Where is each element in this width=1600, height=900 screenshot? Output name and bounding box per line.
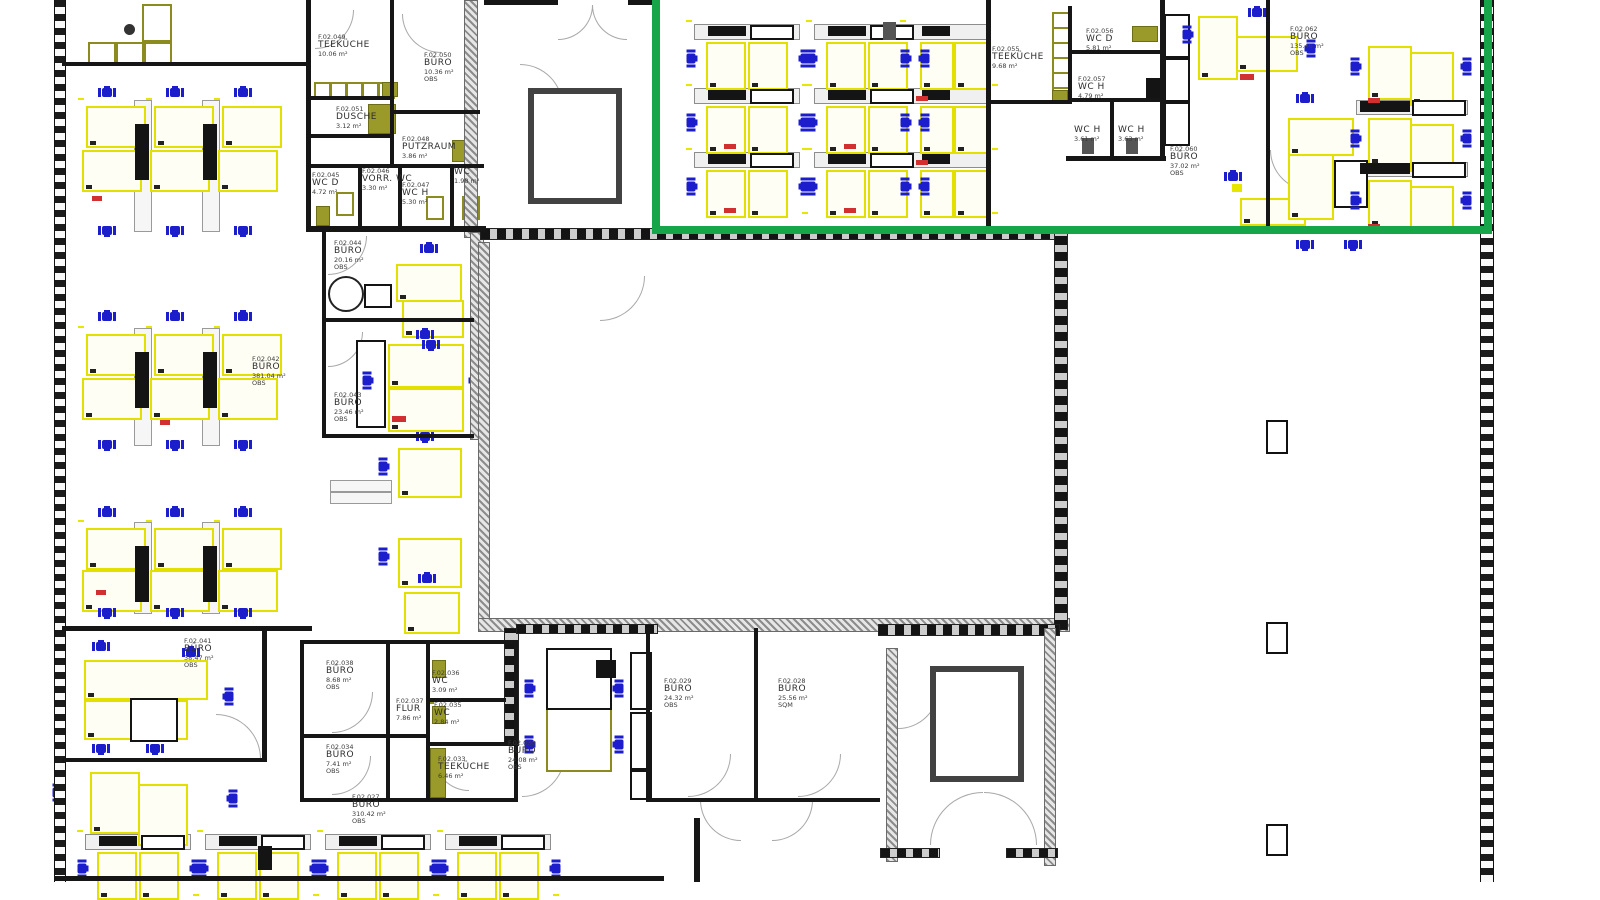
corner-tick [433,894,439,896]
wall [62,758,267,762]
chair-icon [379,462,388,472]
chair-icon [363,376,372,386]
desk [1368,46,1412,100]
floor-marker [724,208,736,213]
wall [484,0,558,5]
chair-icon [238,226,248,235]
structural-column [1266,622,1288,654]
hall-south-wall-a [880,848,940,858]
cabinet [130,698,178,742]
chair-icon [170,88,180,97]
corner-tick [992,148,998,150]
structural-column [1266,420,1288,454]
cabinet [1360,163,1410,174]
room-area: 9.68 m² [992,63,1044,70]
room-label-flur: F.02.037FLUR7.86 m² [396,698,424,722]
wall [54,876,664,881]
selection-highlight-left [652,0,660,234]
room-tag: OBS [184,662,214,669]
room-label-wc_d_nw: F.02.045WC D4.72 m² [312,172,340,196]
hall-south-wall-b [1006,848,1058,858]
room-label-buero_2432: F.02.029BÜRO24.32 m²OBS [664,678,694,709]
room-tag: OBS [1290,50,1324,57]
wall [1266,0,1270,226]
wall [426,644,430,802]
chair-icon [1351,134,1360,144]
floor-marker [1232,184,1242,192]
chair-icon [102,226,112,235]
cabinet [750,25,794,40]
door-arc [592,5,627,40]
door-arc [402,14,441,53]
room-area: 4.72 m² [312,189,340,196]
chair-icon [96,642,106,651]
chair-icon [102,312,112,321]
door-arc [772,800,813,841]
room-tag: OBS [326,684,354,691]
room-area: 3.09 m² [432,687,460,694]
corner-tick [193,894,199,896]
cabinet [1412,162,1466,178]
desk [82,150,142,192]
wc-fixture [1132,26,1158,42]
desk [150,378,210,420]
door-arc [984,792,1037,845]
chair-icon [901,118,910,128]
chair-icon [238,440,248,449]
corner-tick [78,520,84,522]
desk [150,150,210,192]
door-arc [600,276,645,321]
chair-icon [422,574,432,583]
hall-north-wall [878,624,1060,636]
wall [322,318,474,322]
chair-icon [238,508,248,517]
chair-icon [552,864,561,874]
chair-icon [1252,8,1262,17]
courtyard-east-wall [1054,232,1068,630]
chair-icon [170,312,180,321]
desk [218,570,278,612]
cabinet [708,154,746,164]
room-area: 3.86 m² [402,153,456,160]
room-label-buero_2016: F.02.044BÜRO20.16 m²OBS [334,240,364,271]
chair-icon [170,508,180,517]
desk [1288,118,1354,156]
wall [1068,6,1072,104]
room-label-teekueche_s: F.02.033TEEKÜCHE6.46 m² [438,756,490,780]
room-tag: OBS [334,264,364,271]
floor-marker [844,144,856,149]
chair-icon [238,88,248,97]
floor-marker [1240,74,1254,80]
wall [386,644,390,802]
wall [322,434,474,438]
room-area: 3.63 m² [1118,136,1145,143]
corner-tick [313,894,319,896]
chair-icon [901,182,910,192]
wall [1066,156,1166,161]
desk [150,570,210,612]
chair-icon [238,608,248,617]
wall [62,626,312,631]
desk [706,42,746,90]
selection-highlight-right [1484,0,1492,234]
desk [90,772,140,834]
chair-icon [1228,172,1238,181]
chair-icon [807,182,816,192]
room-area: 6.46 m² [438,773,490,780]
wall [646,628,650,802]
wall [1110,98,1114,160]
chair-icon [198,864,207,874]
corner-tick [806,148,812,150]
side-table [364,284,392,308]
cabinet [708,26,746,36]
floor-marker [160,420,170,425]
cabinet [203,124,217,180]
cabinet [596,660,616,678]
room-label-putzraum: F.02.048PUTZRAUM3.86 m² [402,136,456,160]
chair-icon [1351,62,1360,72]
wall [694,818,700,882]
desk [748,170,788,218]
left-facade-wall [54,0,66,882]
room-area: 3.12 m² [336,123,377,130]
room-area: 5.81 m² [1086,45,1114,52]
room-label-buero_3847: F.02.041BÜRO38.47 m²OBS [184,638,214,669]
corner-tick [686,148,692,150]
room-tag: OBS [326,768,354,775]
desk [954,42,988,90]
desk [954,170,988,218]
room-label-buero_310: F.02.027BÜRO310.42 m²OBS [352,794,386,825]
wall [1160,0,1165,160]
corner-tick [77,830,83,832]
door-arc [798,754,841,797]
room-label-buero_2556: F.02.028BÜRO25.56 m²SQM [778,678,808,709]
cabinet [219,836,257,846]
door-arc [930,792,983,845]
floor-marker [1368,98,1380,103]
wall [300,640,304,802]
chair-icon [807,54,816,64]
desk [222,528,282,570]
room-area: 3.61 m² [1074,136,1101,143]
cabinet [339,836,377,846]
room-area: 1.98 m² [454,178,479,185]
cabinet [135,352,149,408]
chair-icon [318,864,327,874]
room-tag: SQM [778,702,808,709]
room-label-wc_nw: WC1.98 m² [454,168,479,185]
chair-icon [102,440,112,449]
wall [990,100,1072,104]
corner-tick [992,84,998,86]
wall [650,798,758,802]
chair-icon [615,740,624,750]
cabinet [459,836,497,846]
courtyard-west-wall [478,242,490,630]
shelf [330,492,392,504]
chair-icon [1463,134,1472,144]
door-arc [688,754,731,797]
cabinet [1164,58,1190,102]
shelf [330,480,392,492]
room-label-buero_2346: F.02.043BÜRO23.46 m²OBS [334,392,364,423]
cabinet [828,154,866,164]
room-label-wc_h_ne: F.02.057WC H4.79 m² [1078,76,1106,100]
wall [306,134,394,138]
room-area: 10.06 m² [318,51,370,58]
round-table [328,276,364,312]
wall [390,0,394,164]
lobby-west-wall [464,0,478,238]
structural-column [1266,824,1288,856]
chair-icon [170,608,180,617]
cabinet-tall [142,4,172,42]
chair-icon [921,54,930,64]
chair-icon [102,508,112,517]
chair-icon [525,684,534,694]
cabinet [135,124,149,180]
desk [1198,16,1238,80]
room-label-buero_741: F.02.034BÜRO7.41 m²OBS [326,744,354,775]
desk [396,264,462,302]
wall [300,798,518,802]
cabinet [203,546,217,602]
cabinet [828,26,866,36]
floor-marker [916,96,928,101]
desk [388,388,464,432]
elevator-core [528,88,622,204]
desk [1368,118,1412,166]
cabinet [750,153,794,168]
cabinet [828,90,866,100]
meeting-table [546,706,612,772]
room-tag: OBS [352,818,386,825]
desk [1288,154,1334,220]
floor-marker [724,144,736,149]
wall [986,0,991,226]
chair-icon [1183,30,1192,40]
corner-tick [437,830,443,832]
desk [748,42,788,90]
cabinet [501,835,545,850]
cabinet [141,835,185,850]
wall [262,626,267,762]
room-tag: OBS [508,764,538,771]
room-tag: OBS [664,702,694,709]
chair-icon [687,54,696,64]
room-tag: OBS [252,380,286,387]
door-arc [332,692,373,733]
wall [306,0,311,230]
corner-tick [553,894,559,896]
floor-marker [844,208,856,213]
room-label-buero_868: F.02.038BÜRO8.68 m²OBS [326,660,354,691]
corner-tick [992,212,998,214]
room-area: 4.79 m² [1078,93,1106,100]
room-label-buero_2408: F.02.030BÜRO24.08 m²OBS [508,740,538,771]
corner-tick [78,98,84,100]
room-label-wc_h_nw: F.02.047WC H5.30 m² [402,182,430,206]
hall-west-wall [886,648,898,862]
selection-highlight-bottom [652,226,1492,234]
wall [322,232,326,438]
corner-tick [802,212,808,214]
desk [1410,52,1454,106]
desk [1368,180,1412,228]
wall [300,734,430,738]
chair-icon [615,684,624,694]
room-tag: OBS [424,76,454,83]
corner-tick [317,830,323,832]
corner-tick [686,84,692,86]
floor-marker [92,196,102,201]
chair-icon [78,864,87,874]
chair-icon [379,552,388,562]
corner-tick [78,326,84,328]
cabinet [1412,100,1466,116]
desk [404,592,460,634]
room-label-teekueche_nw: F.02.049TEEKÜCHE10.06 m² [318,34,370,58]
chair-icon [438,864,447,874]
chair-icon [1300,240,1310,249]
desk [218,150,278,192]
wall [758,798,880,802]
desk [222,106,282,148]
chair-icon [1348,240,1358,249]
wall [62,62,308,66]
room-label-wc_h_ne3: WC H3.63 m² [1118,126,1145,143]
room-label-buero_1036: F.02.050BÜRO10.36 m²OBS [424,52,454,83]
room-label-buero_135: F.02.062BÜRO135.46 m²OBS [1290,26,1324,57]
chair-icon [807,118,816,128]
chair-icon [426,340,436,349]
wall [306,226,486,232]
wall [514,640,518,802]
room-area: 2.84 m² [434,719,462,726]
desk [826,42,866,90]
corner-tick [686,20,692,22]
chair-icon [921,182,930,192]
chair-icon [150,744,160,753]
chair-icon [170,440,180,449]
chair-icon [102,88,112,97]
cabinet [99,836,137,846]
room-tag: OBS [1170,170,1200,177]
room-area: 7.86 m² [396,715,424,722]
room-tag: OBS [334,416,364,423]
desk [398,448,462,498]
desk [954,106,988,154]
wall [394,110,480,114]
cabinet [258,846,272,870]
cabinet [708,90,746,100]
door-arc [700,800,741,841]
chair-icon [170,226,180,235]
lounge-north-wall [516,624,658,634]
chair-icon [1351,196,1360,206]
room-label-teekueche_ne: F.02.055TEEKÜCHE9.68 m² [992,46,1044,70]
wall [426,742,518,746]
chair-icon [424,244,434,253]
chair-icon [687,118,696,128]
cabinet [203,352,217,408]
chair-icon [238,312,248,321]
corner-tick [197,830,203,832]
room-label-wc_284: F.02.035WC2.84 m² [434,702,462,726]
wall [300,640,518,644]
cabinet [1164,102,1190,146]
desk [748,106,788,154]
chair-icon [102,608,112,617]
chair-icon [901,54,910,64]
door-arc [558,5,593,40]
room-label-wc_d_ne: F.02.056WC D5.81 m² [1086,28,1114,52]
chair-icon [1300,94,1310,103]
desk [82,570,142,612]
floor-marker [392,416,406,422]
room-label-buero_381: F.02.042BÜRO381.04 m²OBS [252,356,286,387]
chair-icon [225,692,234,702]
wall [628,0,654,5]
corner-tick [900,20,906,22]
room-area: 5.30 m² [402,199,430,206]
equipment-block [883,22,896,40]
room-label-dusche: F.02.051DUSCHE3.12 m² [336,106,377,130]
desk [388,344,464,388]
chair-icon [229,794,238,804]
room-label-wc_h_ne2: WC H3.61 m² [1074,126,1101,143]
desk [82,378,142,420]
cabinet [922,26,950,36]
corner-tick [806,84,812,86]
meeting-table-top [546,648,612,710]
cabinet [381,835,425,850]
wc-fixture [316,206,330,226]
chair-icon [1463,62,1472,72]
room-label-buero_3702: F.02.060BÜRO37.02 m²OBS [1170,146,1200,177]
chair-icon [687,182,696,192]
chair-icon [420,330,430,339]
floor-plan-canvas: F.02.049TEEKÜCHE10.06 m²F.02.050BÜRO10.3… [0,0,1600,900]
cabinet [135,546,149,602]
room-label-wc_309: F.02.036WC3.09 m² [432,670,460,694]
floor-marker [96,590,106,595]
cabinet [750,89,794,104]
chair-icon [921,118,930,128]
wall [306,96,394,100]
chair-icon [1463,196,1472,206]
cabinet [870,153,914,168]
wall [754,628,758,802]
floor-dot [124,24,135,35]
cabinet [870,89,914,104]
corner-tick [806,20,812,22]
elevator-core [930,666,1024,782]
floor-marker [916,160,928,165]
hall-east-wall [1044,628,1056,866]
door-arc [216,714,261,759]
chair-icon [96,744,106,753]
